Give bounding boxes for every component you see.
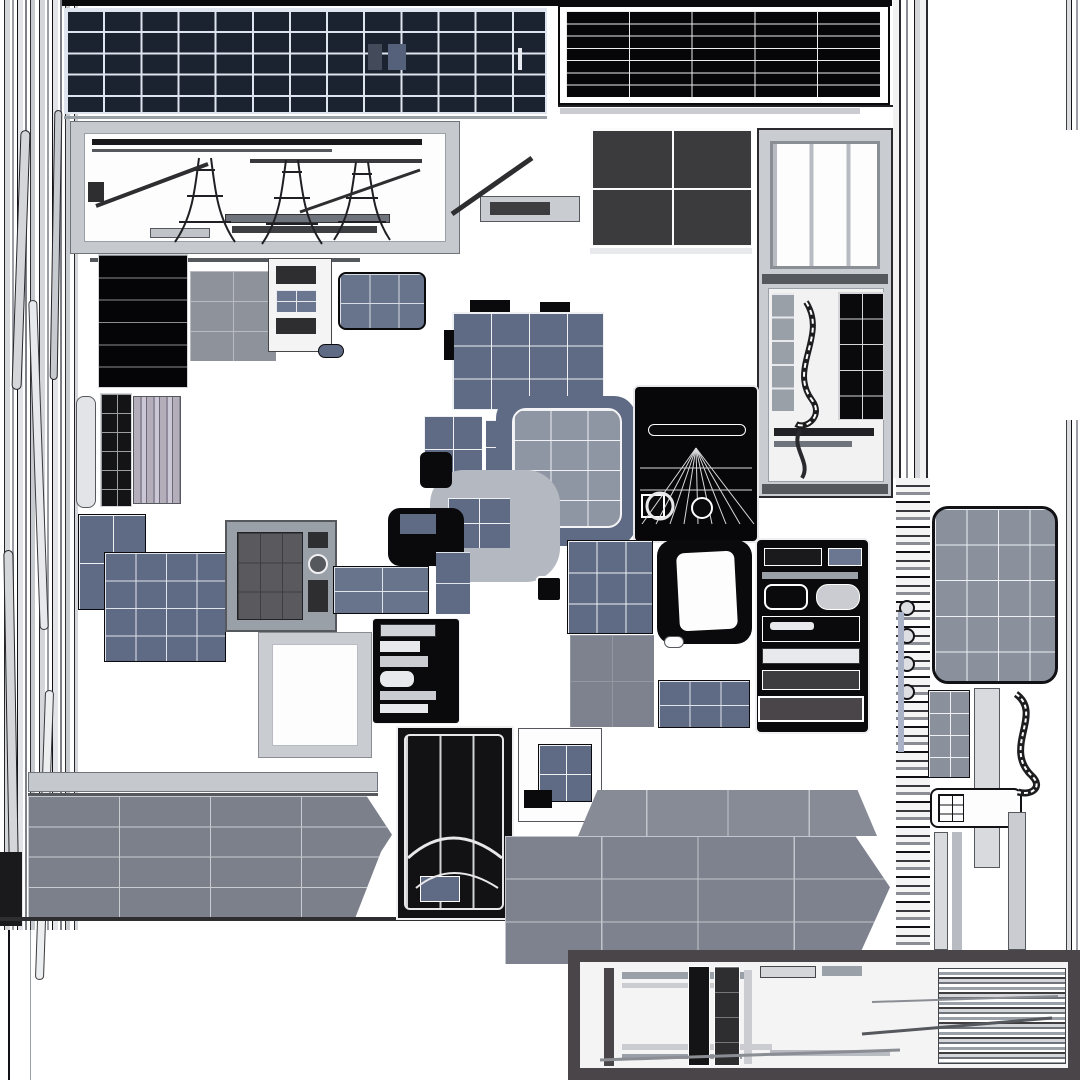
solar-tick (518, 48, 522, 70)
eaves-bar-2 (92, 149, 332, 152)
textured-box-inner (237, 532, 303, 620)
sofa-oval (318, 344, 344, 358)
textured-box-slot-2 (308, 580, 328, 612)
right-grid-small (928, 690, 970, 778)
oven-rail (762, 572, 858, 579)
eaves-platform-2 (232, 226, 377, 233)
tiny-dark-box (536, 576, 562, 602)
right-tube-highlight (1016, 694, 1037, 793)
bp-black-bar-2 (714, 966, 740, 1066)
fan-chair-bar (648, 424, 746, 436)
right-widget-window (938, 794, 964, 822)
slate-attach-2 (540, 302, 570, 312)
small-cabinet-shelf-2 (276, 290, 316, 312)
door-bottom-bar-1 (774, 428, 874, 436)
left-bottom-line-2 (30, 930, 31, 1080)
mauve-striped-panel (133, 396, 181, 504)
slate-grid-center (567, 540, 653, 634)
dark-2x2-panel (590, 128, 752, 246)
louver-underline (558, 105, 893, 107)
door-divider (762, 274, 888, 284)
grey-hip-face (565, 790, 890, 836)
fan-chair-square (641, 494, 665, 518)
cabinet-shelf-3 (380, 656, 428, 667)
slate-nub (444, 330, 454, 360)
eaves-platform-1 (225, 214, 390, 223)
right-strip-c (1008, 812, 1026, 950)
eaves-bar-1 (92, 139, 422, 145)
solar-panel-grid (64, 8, 547, 114)
door-bottom-bar-2 (774, 441, 852, 447)
cabinet-shelf-2 (380, 641, 420, 652)
cabinet-shelf-4 (380, 691, 436, 700)
door-side-strip (898, 612, 904, 752)
oven-light-bar (762, 648, 860, 664)
right-light-column (974, 688, 1000, 868)
right-edge-strip-top (1062, 0, 1080, 130)
white-frame-box-inner (272, 644, 358, 746)
right-strip-b (952, 832, 962, 950)
bp-left-post (604, 968, 614, 1066)
bp-widget-1 (760, 966, 816, 978)
door-left-strip (772, 293, 794, 411)
oven-shelf-1a (764, 548, 822, 566)
bp-black-bar-1 (688, 966, 710, 1066)
grey-box-center (570, 635, 654, 727)
slate-grid-mid-c (333, 566, 429, 614)
black-door-slate (420, 876, 460, 902)
sofa-wireframe (338, 272, 426, 330)
bp-slat-5 (770, 1050, 890, 1056)
left-bottom-line-1 (8, 930, 10, 1080)
bp-grey-post (744, 970, 752, 1064)
oven-shell (816, 584, 860, 610)
black-hlines-panel (98, 254, 188, 388)
slate-attach-1 (470, 300, 510, 312)
fan-chair-box (633, 385, 759, 543)
right-tube (1016, 694, 1037, 793)
solar-underline (64, 116, 547, 119)
black-blob-window (676, 551, 738, 632)
blob-oval (664, 636, 684, 648)
oven-window (764, 584, 808, 610)
roof-dark-strip (28, 793, 378, 796)
eaves-gear-block (88, 182, 104, 202)
small-cabinet-shelf-1 (276, 266, 316, 284)
topmid-dark-bar (490, 202, 550, 215)
door-window (770, 141, 880, 269)
grey-panel-midleft (190, 271, 276, 361)
right-strip-column-top (893, 0, 930, 478)
eaves-box (150, 228, 210, 238)
connector-dark (420, 452, 452, 488)
oven-drawer-detail (770, 622, 814, 630)
slate-strip-pair (436, 552, 470, 614)
uv-atlas-canvas (0, 0, 1080, 1080)
eaves-bar-3 (250, 159, 422, 163)
oven-base (758, 696, 864, 722)
dark-slat-cabinet (100, 393, 132, 507)
cabinet-shelf-5 (380, 704, 428, 713)
textured-box-knob (308, 554, 328, 574)
cabinet-shelf-1 (380, 624, 436, 637)
door-bottom-frame (762, 484, 888, 494)
solar-junction-2 (388, 44, 406, 70)
grey-big-slab (505, 836, 890, 964)
small-cabinet-shelf-3 (276, 318, 316, 334)
slate-grid-center-b (658, 680, 750, 728)
right-rounded-grid-panel (932, 506, 1058, 684)
left-dark-block (0, 852, 22, 926)
louver-underbar (560, 108, 860, 114)
right-strip-a (934, 832, 948, 950)
left-capsule (76, 396, 96, 508)
black-blob-slate (400, 514, 436, 534)
roof-light-strip (28, 772, 378, 792)
bp-slat-stack (938, 968, 1066, 1064)
slate-grid-left-b (104, 552, 226, 662)
louver-panel-inner (566, 11, 880, 97)
dark-2x2-underbar (590, 248, 752, 254)
roof-slab (28, 796, 392, 917)
cabinet-bread (380, 671, 414, 687)
bp-widget-2 (822, 966, 862, 976)
white-box-lower-dark (524, 790, 552, 808)
door-black-grid (838, 292, 884, 420)
oven-band (762, 670, 860, 690)
textured-box-slot-1 (308, 532, 328, 548)
oven-shelf-1b (828, 548, 862, 566)
solar-junction-1 (368, 44, 382, 70)
